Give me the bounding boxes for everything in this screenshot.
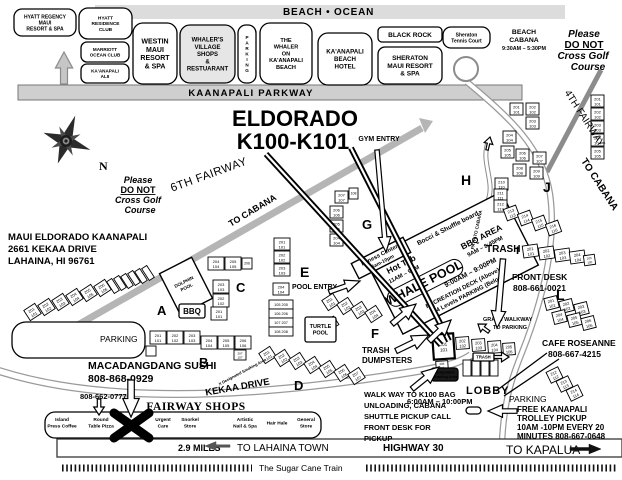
smoking-area-lobby-box-label: Smoking Area: [432, 375, 458, 379]
westin-box-label: MAUI: [146, 47, 164, 54]
fairway-6-label: 6TH FAIRWAY: [169, 156, 249, 195]
sheraton-box-label: & SPA: [400, 71, 420, 78]
building-e-unit-no: 103: [279, 270, 286, 275]
address-line-3: LAHAINA, HI 96761: [8, 256, 95, 267]
compass-n-label: N: [99, 159, 108, 173]
beach-cabana-hours: 9:30AM – 5:30PM: [502, 46, 547, 52]
shop-snorkel-store: Store: [184, 424, 197, 430]
building-b-unit: [146, 346, 156, 356]
building-e-unit-no: 101: [279, 244, 286, 249]
whalers-village-box-label: SHOPS: [197, 52, 218, 58]
marriott-ocean-club-box-label: OCEAN CLUB: [90, 52, 121, 57]
sheraton-tennis-box-label: Tennis Court: [451, 38, 482, 44]
trolley-pickup-arrow: [488, 405, 517, 418]
building-b-unit-no: 105: [223, 343, 230, 348]
building-e-unit-no: 108 208: [274, 330, 288, 334]
trash-upper-label: TRASH: [486, 244, 520, 255]
whalers-village-box-label: VILLAGE: [194, 45, 220, 51]
highway-30-label: HIGHWAY 30: [383, 443, 444, 454]
building-e-unit: 105 205: [269, 300, 293, 309]
building-h-unit-no: 102: [529, 109, 536, 114]
to-cabana-right-label: TO CABANA: [578, 157, 620, 213]
building-b-unit-no: 106: [240, 343, 247, 348]
resort-map-page: Bocci & Shuffle boardHot Tub11AM – 9PMBB…: [0, 0, 622, 480]
turtle-pool-box-label: TURTLE: [310, 324, 332, 330]
building-i-unit-no: 105: [587, 260, 593, 265]
trolley-note-4: MINUTES 808-667-0648: [517, 432, 606, 441]
building-h-unit-no: 103: [529, 123, 536, 128]
building-h-unit: 209109: [530, 167, 543, 179]
sheraton-box-label: MAUI RESORT: [387, 63, 433, 70]
to-kapalua-label: TO KAPALUA: [506, 443, 580, 457]
the-whaler-box-label: THE: [280, 38, 291, 44]
shop-snorkel-store: Snorkel: [181, 417, 199, 423]
building-g-unit: 206106: [330, 206, 343, 218]
building-h-unit-no: 108: [516, 170, 523, 175]
shop-artistic-nail-spa: Nail & Spa: [233, 424, 257, 430]
building-e-unit-no: 105 205: [274, 303, 288, 307]
whalers-village-box-label: &: [205, 59, 210, 65]
building-h-unit-no: 106: [519, 155, 526, 160]
building-c-unit: 203103: [213, 280, 229, 293]
building-b-unit-no: 103: [189, 338, 196, 343]
sugar-cane-train-label: The Sugar Cane Train: [259, 463, 343, 473]
building-h-unit: 202102: [526, 103, 539, 115]
building-j-row-unit: 214114: [517, 210, 533, 226]
building-c-letter: C: [236, 280, 246, 295]
building-h-unit: 206106: [516, 149, 529, 161]
building-j-unit: 202102: [591, 108, 604, 120]
parking-structure-box-label: I: [246, 57, 247, 62]
building-j-row-unit: 216116: [545, 220, 561, 236]
building-f-unit: 204104: [365, 305, 382, 322]
building-g-unit-no: 104: [333, 240, 340, 245]
building-j-unit: 211111: [494, 189, 507, 201]
gym-entry-label: GYM ENTRY: [358, 136, 400, 143]
building-c-unit: 201101: [211, 307, 227, 320]
shop-round-table-pizza: Round: [93, 417, 108, 423]
front-desk-label: FRONT DESK: [512, 272, 568, 282]
resort-map: Bocci & Shuffle boardHot Tub11AM – 9PMBB…: [0, 0, 622, 480]
building-c-unit-no: 105: [230, 264, 237, 269]
shop-urgent-care: Care: [158, 424, 169, 430]
building-l-unit: 204104: [552, 310, 568, 325]
whalers-village-box-label: RESTUARANT: [187, 67, 229, 73]
parking-structure-box-label: P: [245, 35, 248, 40]
building-k-unit: 204104: [488, 341, 502, 354]
building-h-unit-no: 105: [504, 152, 511, 157]
map-title-1: ELDORADO: [232, 106, 358, 131]
beach-cabana-1: BEACH: [512, 29, 536, 36]
building-k-unit-no: 103: [475, 345, 483, 351]
turtle-pool-box-label: POOL: [313, 331, 329, 337]
building-h-unit-no: 101: [513, 109, 520, 114]
lobby-label: LOBBY: [466, 385, 510, 397]
building-c-unit: 202102: [213, 294, 229, 307]
building-e-unit-no: 107 207: [274, 321, 288, 325]
building-h-unit: 205105: [501, 146, 514, 158]
building-l-unit: 205105: [567, 313, 583, 328]
building-b-unit-box: [146, 346, 156, 356]
golf-note-left-4: Course: [124, 205, 155, 215]
golf-note-right-1: Please: [568, 29, 600, 40]
building-j-unit: 201101: [591, 95, 604, 107]
building-j-row-unit: 215115: [531, 215, 547, 231]
cafe-roseanne-phone: 808-667-4215: [548, 349, 601, 359]
building-k-unit: 202102: [456, 337, 470, 350]
building-e-letter: E: [300, 264, 309, 280]
lobby-building-unit: [463, 360, 471, 376]
building-b-unit: 204104: [201, 336, 217, 349]
hyatt-residence-box-label: CLUB: [99, 27, 113, 33]
building-f-letter: F: [371, 326, 379, 341]
building-c-unit-no: 104: [213, 264, 220, 269]
kaanapali-beach-hotel-box-label: KA'ANAPALI: [326, 49, 364, 56]
walkway-note-5: PICKUP: [364, 434, 392, 443]
building-g-letter: G: [362, 217, 372, 232]
building-c-unit-no: 101: [216, 314, 223, 319]
golf-note-right-2: DO NOT: [565, 40, 604, 51]
trash-box-lobby-label: TRASH: [476, 354, 490, 359]
k-building-arrow: [395, 335, 429, 354]
building-k-unit-no: 101: [440, 347, 448, 353]
front-desk-phone: 808-661-0021: [513, 283, 566, 293]
building-c-unit: 205105: [225, 257, 241, 270]
lobby-building-unit-box: [481, 360, 489, 376]
bbq-box-label: BBQ: [183, 307, 201, 316]
building-b-unit: 203103: [184, 331, 200, 344]
black-rock-box-label: BLACK ROCK: [388, 32, 432, 39]
building-f-unit: 202102: [337, 297, 354, 314]
building-d-letter: D: [294, 378, 303, 393]
shop-artistic-nail-spa: Artistic: [237, 417, 254, 423]
building-f-unit: 203103: [351, 301, 368, 318]
golf-note-right-4: Course: [571, 62, 606, 73]
building-j-letter: J: [543, 179, 551, 195]
westin-box-label: RESORT: [140, 55, 170, 62]
building-e-unit: 203103: [274, 264, 290, 276]
building-e-unit: 204104: [273, 283, 289, 295]
cafe-roseanne-label: CAFE ROSEANNE: [542, 338, 616, 348]
address-line-1: MAUI ELDORADO KAANAPALI: [8, 232, 147, 243]
building-i-unit: 202102: [538, 246, 555, 260]
building-j-unit-no: 101: [594, 101, 601, 106]
trolley-note-1: FREE KAANAPALI: [517, 405, 587, 414]
compass-icon: [35, 107, 99, 172]
kaanapali-beach-hotel-box-label: BEACH: [334, 56, 357, 63]
building-l-unit: 206106: [581, 316, 597, 331]
building-g-unit-no: 106: [333, 212, 340, 217]
the-whaler-box-label: BEACH: [276, 65, 296, 71]
building-h-unit: 208108: [513, 164, 526, 176]
building-e-unit: 201101: [274, 238, 290, 250]
building-c-unit-no: 103: [218, 287, 225, 292]
building-b-unit: 201101: [150, 331, 166, 344]
building-e-unit: 106 206: [269, 309, 293, 318]
westin-box-label: WESTIN: [141, 38, 168, 45]
building-g-unit: 207107: [335, 191, 348, 203]
shop-urgent-care: Urgent: [155, 417, 171, 423]
roundtable-phone: 808-662-0777: [80, 392, 127, 401]
building-a-letter: A: [157, 303, 167, 318]
building-b-unit: 207107: [234, 350, 246, 360]
shop-general-store: Store: [300, 424, 313, 430]
building-e-unit: 108 208: [269, 327, 293, 336]
building-d-unit: 202102: [274, 349, 291, 366]
building-g-unit-no: 108: [351, 192, 357, 196]
building-h-unit-no: 104: [506, 137, 513, 142]
building-k-unit-no: 104: [491, 347, 499, 353]
building-h-unit-no: 107: [536, 158, 543, 163]
the-whaler-box-label: KA'ANAPALI: [269, 58, 303, 64]
building-e-unit: 202102: [274, 251, 290, 263]
building-k-unit-no: 102: [459, 343, 467, 349]
shop-island-press-coffee: Island: [55, 417, 69, 423]
building-e-unit-no: 102: [279, 257, 286, 262]
building-e-unit-no: 104: [278, 289, 285, 294]
golf-note-left-3: Cross Golf: [115, 195, 162, 205]
walkway-note-4: FRONT DESK FOR: [364, 423, 431, 432]
trash-dumpsters-2: DUMPSTERS: [362, 356, 413, 365]
trash-dumpsters-1: TRASH: [362, 346, 390, 355]
fairway-shops-title: FAIRWAY SHOPS: [146, 401, 245, 413]
building-b-unit-no: 104: [206, 343, 213, 348]
address-line-2: 2661 KEKAA DRIVE: [8, 244, 97, 255]
building-d-unit: 204104: [304, 356, 321, 373]
trolley-note-3: 10AM -10PM EVERY 20: [517, 423, 605, 432]
macadangdang-label: MACADANGDANG SUSHI: [88, 360, 216, 372]
sheraton-box-label: SHERATON: [392, 55, 428, 62]
building-b-unit-no: 102: [172, 338, 179, 343]
building-h-unit-no: 109: [533, 173, 540, 178]
shop-round-table-pizza: Table Pizza: [88, 424, 114, 430]
building-g-unit-no: 107: [338, 197, 345, 202]
building-k-unit-no: 105: [506, 349, 514, 355]
walkway-note-3: SHUTTLE PICKUP CALL: [364, 412, 451, 421]
building-j-unit-no: 102: [594, 114, 601, 119]
building-c-unit: 206: [242, 258, 252, 269]
grass-walkway-1: GRASS WALKWAY: [483, 317, 533, 323]
building-h-unit: 203103: [526, 117, 539, 129]
hyatt-residence-box-label: HYATT: [98, 15, 113, 21]
westin-box-label: & SPA: [145, 64, 166, 71]
hyatt-regency-box-label: RESORT & SPA: [26, 26, 64, 32]
building-b-unit-no: 107: [237, 355, 242, 359]
building-c-unit-no: 206: [244, 262, 250, 266]
map-title-2: K100-K101: [237, 129, 350, 154]
building-i-unit: 205105: [583, 254, 595, 265]
building-g-unit: 108: [349, 188, 358, 199]
parking-lobby-label: PARKING: [509, 394, 547, 404]
building-h-unit: 201101: [510, 103, 523, 115]
the-whaler-box-label: ON: [282, 51, 290, 57]
beach-access-arrow: [55, 52, 72, 84]
building-j-unit: 210110: [495, 178, 508, 190]
building-h-unit: 204104: [503, 131, 516, 143]
building-i-unit: 203103: [554, 248, 571, 262]
building-e-unit: 107 207: [269, 318, 293, 327]
building-k-unit: 203103: [472, 339, 486, 352]
shop-general-store: General: [297, 417, 315, 423]
building-b-unit-no: 101: [155, 338, 162, 343]
lobby-building-unit-box: [472, 360, 480, 376]
lobby-building-unit: [472, 360, 480, 376]
building-d-unit: 203103: [289, 352, 306, 369]
lobby-building-unit: [481, 360, 489, 376]
building-b-unit: 202102: [167, 331, 183, 344]
beach-ocean-label: BEACH • OCEAN: [283, 7, 374, 18]
building-j-unit-no: 105: [594, 153, 601, 158]
trolley-note-2: TROLLEY PICKUP: [517, 414, 587, 423]
beach-cabana-2: CABANA: [509, 37, 539, 44]
lobby-hours: 6:00AM – 10:00PM: [407, 397, 472, 406]
roundabout: [454, 57, 478, 81]
building-d-unit: 205105: [319, 360, 336, 377]
hyatt-residence-box-label: RESIDENCE: [92, 21, 121, 27]
golf-note-right-3: Cross Golf: [557, 51, 610, 62]
kaanapali-alii-box-label: ALII: [101, 74, 110, 79]
building-h-letter: H: [461, 172, 471, 188]
building-b-unit: 205105: [218, 336, 234, 349]
building-h-unit: 207107: [533, 152, 546, 164]
marriott-ocean-club-box-label: MARRIOTT: [93, 47, 117, 52]
white-marker-box: [466, 407, 481, 414]
parking-left-label: PARKING: [100, 334, 138, 344]
building-f-unit: 201101: [322, 293, 339, 310]
kaanapali-parkway-label: KAANAPALI PARKWAY: [188, 88, 313, 99]
lobby-building-unit-box: [463, 360, 471, 376]
lobby-building-unit: [490, 360, 498, 376]
golf-note-left-2: DO NOT: [121, 185, 157, 195]
building-c-unit: 204104: [208, 257, 224, 270]
kaanapali-alii-box-label: KA'ANAPALI: [91, 68, 119, 73]
building-b-unit: 206106: [235, 336, 251, 349]
grass-walkway-arrow: [478, 324, 490, 333]
macadangdang-phone: 808-868-0929: [88, 373, 154, 385]
shop-island-press-coffee: Press Coffee: [47, 424, 77, 430]
the-whaler-box-label: WHALER: [274, 45, 299, 51]
building-i-unit: 201101: [522, 244, 539, 258]
golf-note-left-1: Please: [124, 175, 153, 185]
lobby-building-unit-box: [490, 360, 498, 376]
shop-hair-hale: Hair Hale: [267, 421, 288, 427]
parking-structure-box-label: G: [245, 68, 249, 73]
building-e-unit-no: 106 206: [274, 312, 288, 316]
building-c-unit-no: 102: [218, 301, 225, 306]
kaanapali-beach-hotel-box-label: HOTEL: [335, 64, 356, 71]
whalers-village-box-label: WHALER'S: [192, 38, 224, 44]
to-lahaina-label: TO LAHAINA TOWN: [237, 443, 329, 454]
